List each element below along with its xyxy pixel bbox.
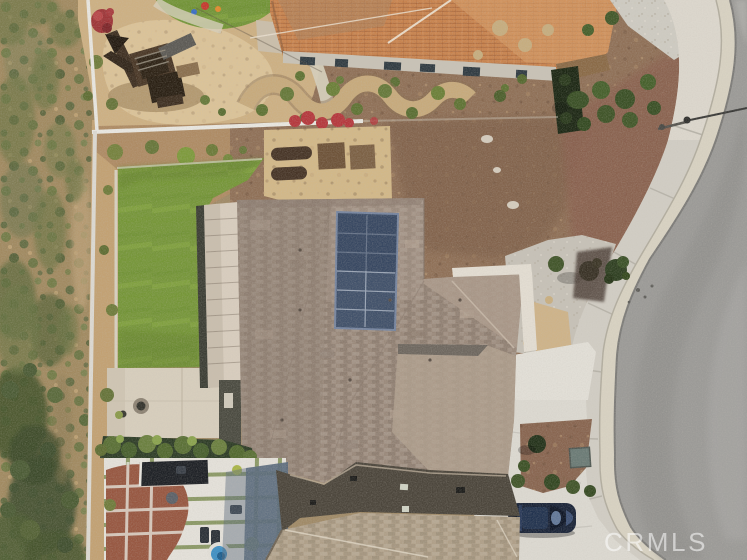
svg-text:CRMLS: CRMLS: [604, 527, 708, 557]
